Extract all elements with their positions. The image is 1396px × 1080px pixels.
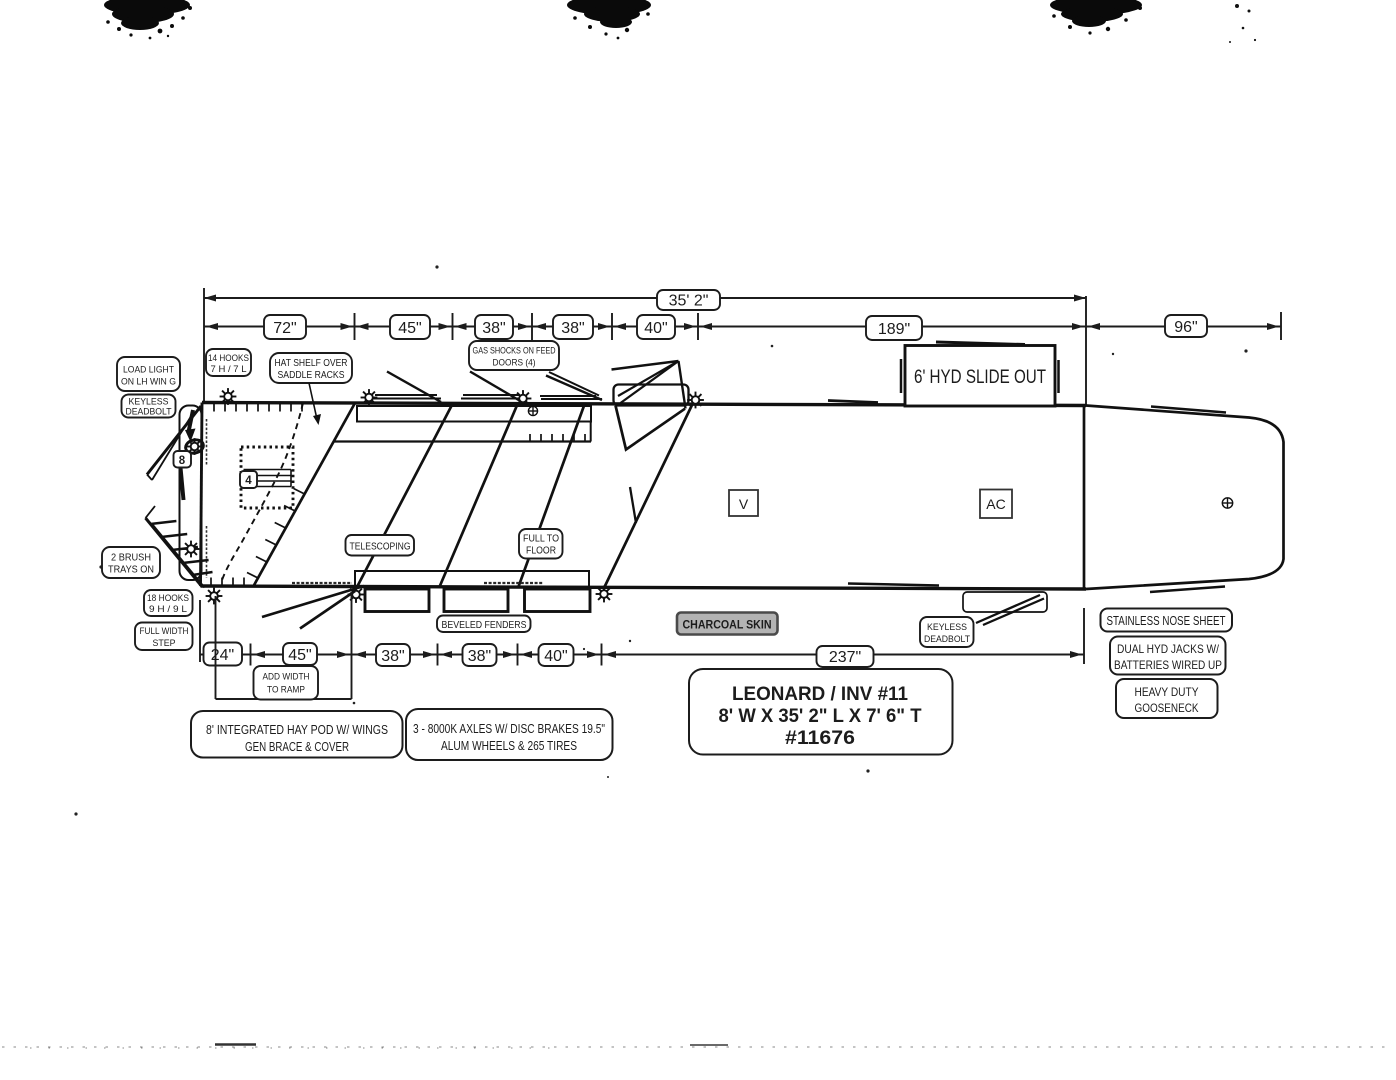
svg-text:189": 189" <box>878 321 910 338</box>
svg-text:38": 38" <box>561 320 584 337</box>
svg-text:BATTERIES WIRED UP: BATTERIES WIRED UP <box>1114 658 1222 672</box>
svg-text:4: 4 <box>245 475 252 487</box>
svg-text:24": 24" <box>211 647 234 664</box>
svg-text:SADDLE RACKS: SADDLE RACKS <box>278 370 345 381</box>
svg-text:CHARCOAL SKIN: CHARCOAL SKIN <box>683 618 772 632</box>
svg-text:AC: AC <box>986 496 1005 512</box>
svg-text:2 BRUSH: 2 BRUSH <box>111 553 151 564</box>
svg-text:KEYLESS: KEYLESS <box>927 622 967 632</box>
svg-text:#11676: #11676 <box>785 727 855 749</box>
svg-text:DOORS (4): DOORS (4) <box>493 358 536 369</box>
svg-text:DEADBOLT: DEADBOLT <box>126 407 172 418</box>
svg-text:ON LH WIN G: ON LH WIN G <box>121 377 176 388</box>
svg-text:6' HYD SLIDE OUT: 6' HYD SLIDE OUT <box>914 367 1046 388</box>
svg-text:STEP: STEP <box>153 638 176 649</box>
svg-text:18 HOOKS: 18 HOOKS <box>147 593 189 604</box>
svg-text:TO RAMP: TO RAMP <box>267 685 305 696</box>
svg-text:35' 2": 35' 2" <box>669 293 709 310</box>
svg-text:40": 40" <box>544 648 567 665</box>
svg-text:72": 72" <box>273 320 296 337</box>
svg-text:FULL WIDTH: FULL WIDTH <box>140 626 189 637</box>
svg-text:GAS SHOCKS ON FEED: GAS SHOCKS ON FEED <box>473 346 556 357</box>
svg-text:FULL TO: FULL TO <box>523 534 559 545</box>
svg-text:TRAYS ON: TRAYS ON <box>108 565 154 576</box>
svg-text:8' INTEGRATED HAY POD W/ WINGS: 8' INTEGRATED HAY POD W/ WINGS <box>206 722 388 737</box>
svg-text:237": 237" <box>829 649 861 666</box>
svg-text:40": 40" <box>644 320 667 337</box>
svg-text:LEONARD / INV #11: LEONARD / INV #11 <box>732 683 908 705</box>
svg-text:9 H / 9 L: 9 H / 9 L <box>149 604 187 615</box>
svg-text:TELESCOPING: TELESCOPING <box>350 542 411 553</box>
svg-text:14 HOOKS: 14 HOOKS <box>208 353 249 364</box>
svg-text:38": 38" <box>482 320 505 337</box>
svg-text:DEADBOLT: DEADBOLT <box>924 634 970 644</box>
svg-text:38": 38" <box>468 648 491 665</box>
svg-text:HAT SHELF OVER: HAT SHELF OVER <box>275 358 348 369</box>
svg-text:ADD WIDTH: ADD WIDTH <box>263 672 310 683</box>
svg-text:3 - 8000K AXLES W/ DISC BRAKES: 3 - 8000K AXLES W/ DISC BRAKES 19.5" <box>413 721 605 736</box>
svg-text:FLOOR: FLOOR <box>526 546 556 557</box>
svg-text:38": 38" <box>381 648 404 665</box>
svg-text:8: 8 <box>179 455 186 467</box>
svg-text:96": 96" <box>1174 319 1197 336</box>
svg-text:LOAD LIGHT: LOAD LIGHT <box>123 365 174 376</box>
svg-text:HEAVY DUTY: HEAVY DUTY <box>1135 685 1199 699</box>
svg-text:45": 45" <box>398 320 421 337</box>
svg-text:GOOSENECK: GOOSENECK <box>1135 701 1199 715</box>
svg-text:GEN BRACE & COVER: GEN BRACE & COVER <box>245 739 349 754</box>
svg-text:BEVELED FENDERS: BEVELED FENDERS <box>442 620 527 631</box>
svg-text:7 H / 7 L: 7 H / 7 L <box>211 364 247 375</box>
svg-text:8' W X 35' 2" L X 7' 6" T: 8' W X 35' 2" L X 7' 6" T <box>719 705 922 727</box>
svg-text:V: V <box>739 496 749 512</box>
svg-text:DUAL HYD JACKS W/: DUAL HYD JACKS W/ <box>1117 642 1220 656</box>
svg-text:STAINLESS NOSE SHEET: STAINLESS NOSE SHEET <box>1107 614 1226 628</box>
svg-text:45": 45" <box>288 647 311 664</box>
svg-text:ALUM WHEELS & 265 TIRES: ALUM WHEELS & 265 TIRES <box>441 738 577 753</box>
